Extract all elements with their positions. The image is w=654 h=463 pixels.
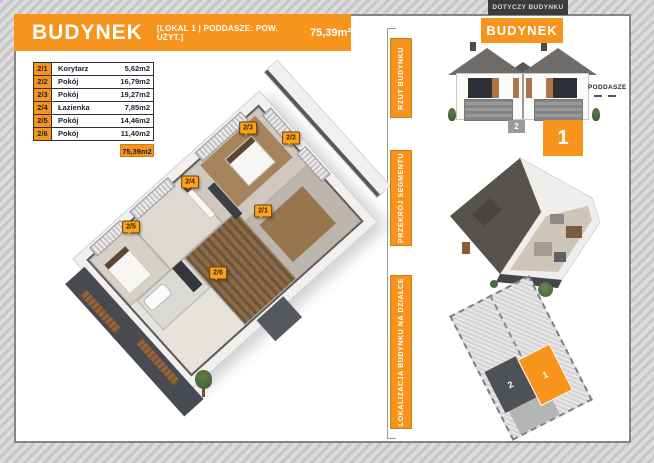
room-name-cell: Pokój xyxy=(52,89,108,101)
tree xyxy=(538,282,553,297)
room-tag-2-5: 2/5 xyxy=(122,221,140,234)
room-area-cell: 7,85m2 xyxy=(108,102,153,114)
applies-to-building-banner: DOTYCZY BUDYNKU xyxy=(488,0,568,15)
room-tag-2-6: 2/6 xyxy=(209,267,227,280)
roof-gable-right xyxy=(519,48,597,75)
chimney xyxy=(541,42,547,51)
wood-panel xyxy=(546,78,553,98)
section-banner-label: LOKALIZACJA BUDYNKU NA DZIAŁCE xyxy=(398,278,405,426)
room-name-cell: Korytarz xyxy=(52,63,108,75)
attic-level-label: PODDASZE xyxy=(588,84,627,91)
header-total-area: 75,39m² xyxy=(310,27,351,39)
section-banner-lokalizacja: LOKALIZACJA BUDYNKU NA DZIAŁCE xyxy=(390,275,412,429)
table-row: 2/6 Pokój 11,40m2 xyxy=(33,128,154,141)
garage-door xyxy=(534,99,583,121)
section-banner-przekroj: PRZEKRÓJ SEGMENTU xyxy=(390,150,412,246)
bed-headboard xyxy=(104,246,129,269)
room-number-cell: 2/5 xyxy=(34,115,52,127)
room-area-cell: 11,40m2 xyxy=(108,128,153,140)
sheet-page: BUDYNEK [LOKAL 1 | PODDASZE: POW. UŻYT.]… xyxy=(14,14,631,443)
garage-door xyxy=(464,99,513,121)
room-name-cell: Łazienka xyxy=(52,102,108,114)
bush xyxy=(195,370,212,389)
plot-location-map: 2 1 xyxy=(449,275,593,441)
table-total-row: 75,39m2 xyxy=(33,144,154,157)
section-banner-label: PRZEKRÓJ SEGMENTU xyxy=(398,153,405,243)
section-banner-rzut: RZUT BUDYNKU xyxy=(390,38,412,118)
segment-cutaway-3d xyxy=(442,154,607,294)
window xyxy=(553,78,577,98)
plant xyxy=(448,108,456,121)
segment-divider xyxy=(522,74,524,119)
room-area-cell: 14,46m2 xyxy=(108,115,153,127)
room-table: 2/1 Korytarz 5,62m2 2/2 Pokój 16,79m2 2/… xyxy=(33,62,154,157)
building-elevation xyxy=(440,42,610,138)
bush-trunk xyxy=(202,388,205,397)
table-row: 2/2 Pokój 16,79m2 xyxy=(33,76,154,89)
room-name-cell: Pokój xyxy=(52,115,108,127)
entry-door xyxy=(526,78,532,98)
elevation-walls xyxy=(456,73,589,120)
chimney xyxy=(470,42,476,51)
segment-2-box: 2 xyxy=(508,120,525,133)
table-row: 2/4 Łazienka 7,85m2 xyxy=(33,102,154,115)
total-area-cell: 75,39m2 xyxy=(120,144,154,157)
room-name-cell: Pokój xyxy=(52,76,108,88)
page-title: BUDYNEK xyxy=(32,21,143,45)
room-number-cell: 2/6 xyxy=(34,128,52,140)
wood-slats xyxy=(80,290,121,334)
screenshot-root: { "header": { "title": "BUDYNEK", "subti… xyxy=(0,0,654,463)
room-tag-2-3: 2/3 xyxy=(239,122,257,135)
room-area-cell: 16,79m2 xyxy=(108,76,153,88)
plant xyxy=(592,108,600,121)
room-number-cell: 2/4 xyxy=(34,102,52,114)
table-row: 2/5 Pokój 14,46m2 xyxy=(33,115,154,128)
table-row: 2/1 Korytarz 5,62m2 xyxy=(33,62,154,76)
bed xyxy=(103,245,152,295)
room-tag-2-2: 2/2 xyxy=(282,132,300,145)
sheet-header: BUDYNEK [LOKAL 1 | PODDASZE: POW. UŻYT.]… xyxy=(14,14,351,51)
room-number-cell: 2/1 xyxy=(34,63,52,75)
wood-panel xyxy=(492,78,499,98)
table-row: 2/3 Pokój 19,27m2 xyxy=(33,89,154,102)
room-name-cell: Pokój xyxy=(52,128,108,140)
window xyxy=(468,78,492,98)
cutaway-graphic xyxy=(442,154,607,294)
room-number-cell: 2/3 xyxy=(34,89,52,101)
header-subtitle: [LOKAL 1 | PODDASZE: POW. UŻYT.] xyxy=(157,24,303,42)
room-area-cell: 19,27m2 xyxy=(108,89,153,101)
roof-gable-left xyxy=(448,48,526,75)
segment-1-box: 1 xyxy=(543,120,583,156)
room-tag-2-4: 2/4 xyxy=(181,176,199,189)
building-label: BUDYNEK xyxy=(481,18,563,43)
section-banner-label: RZUT BUDYNKU xyxy=(398,47,405,110)
room-tag-2-1: 2/1 xyxy=(254,205,272,218)
room-number-cell: 2/2 xyxy=(34,76,52,88)
room-area-cell: 5,62m2 xyxy=(108,63,153,75)
attic-level-marks xyxy=(594,95,616,97)
entry-door xyxy=(513,78,519,98)
